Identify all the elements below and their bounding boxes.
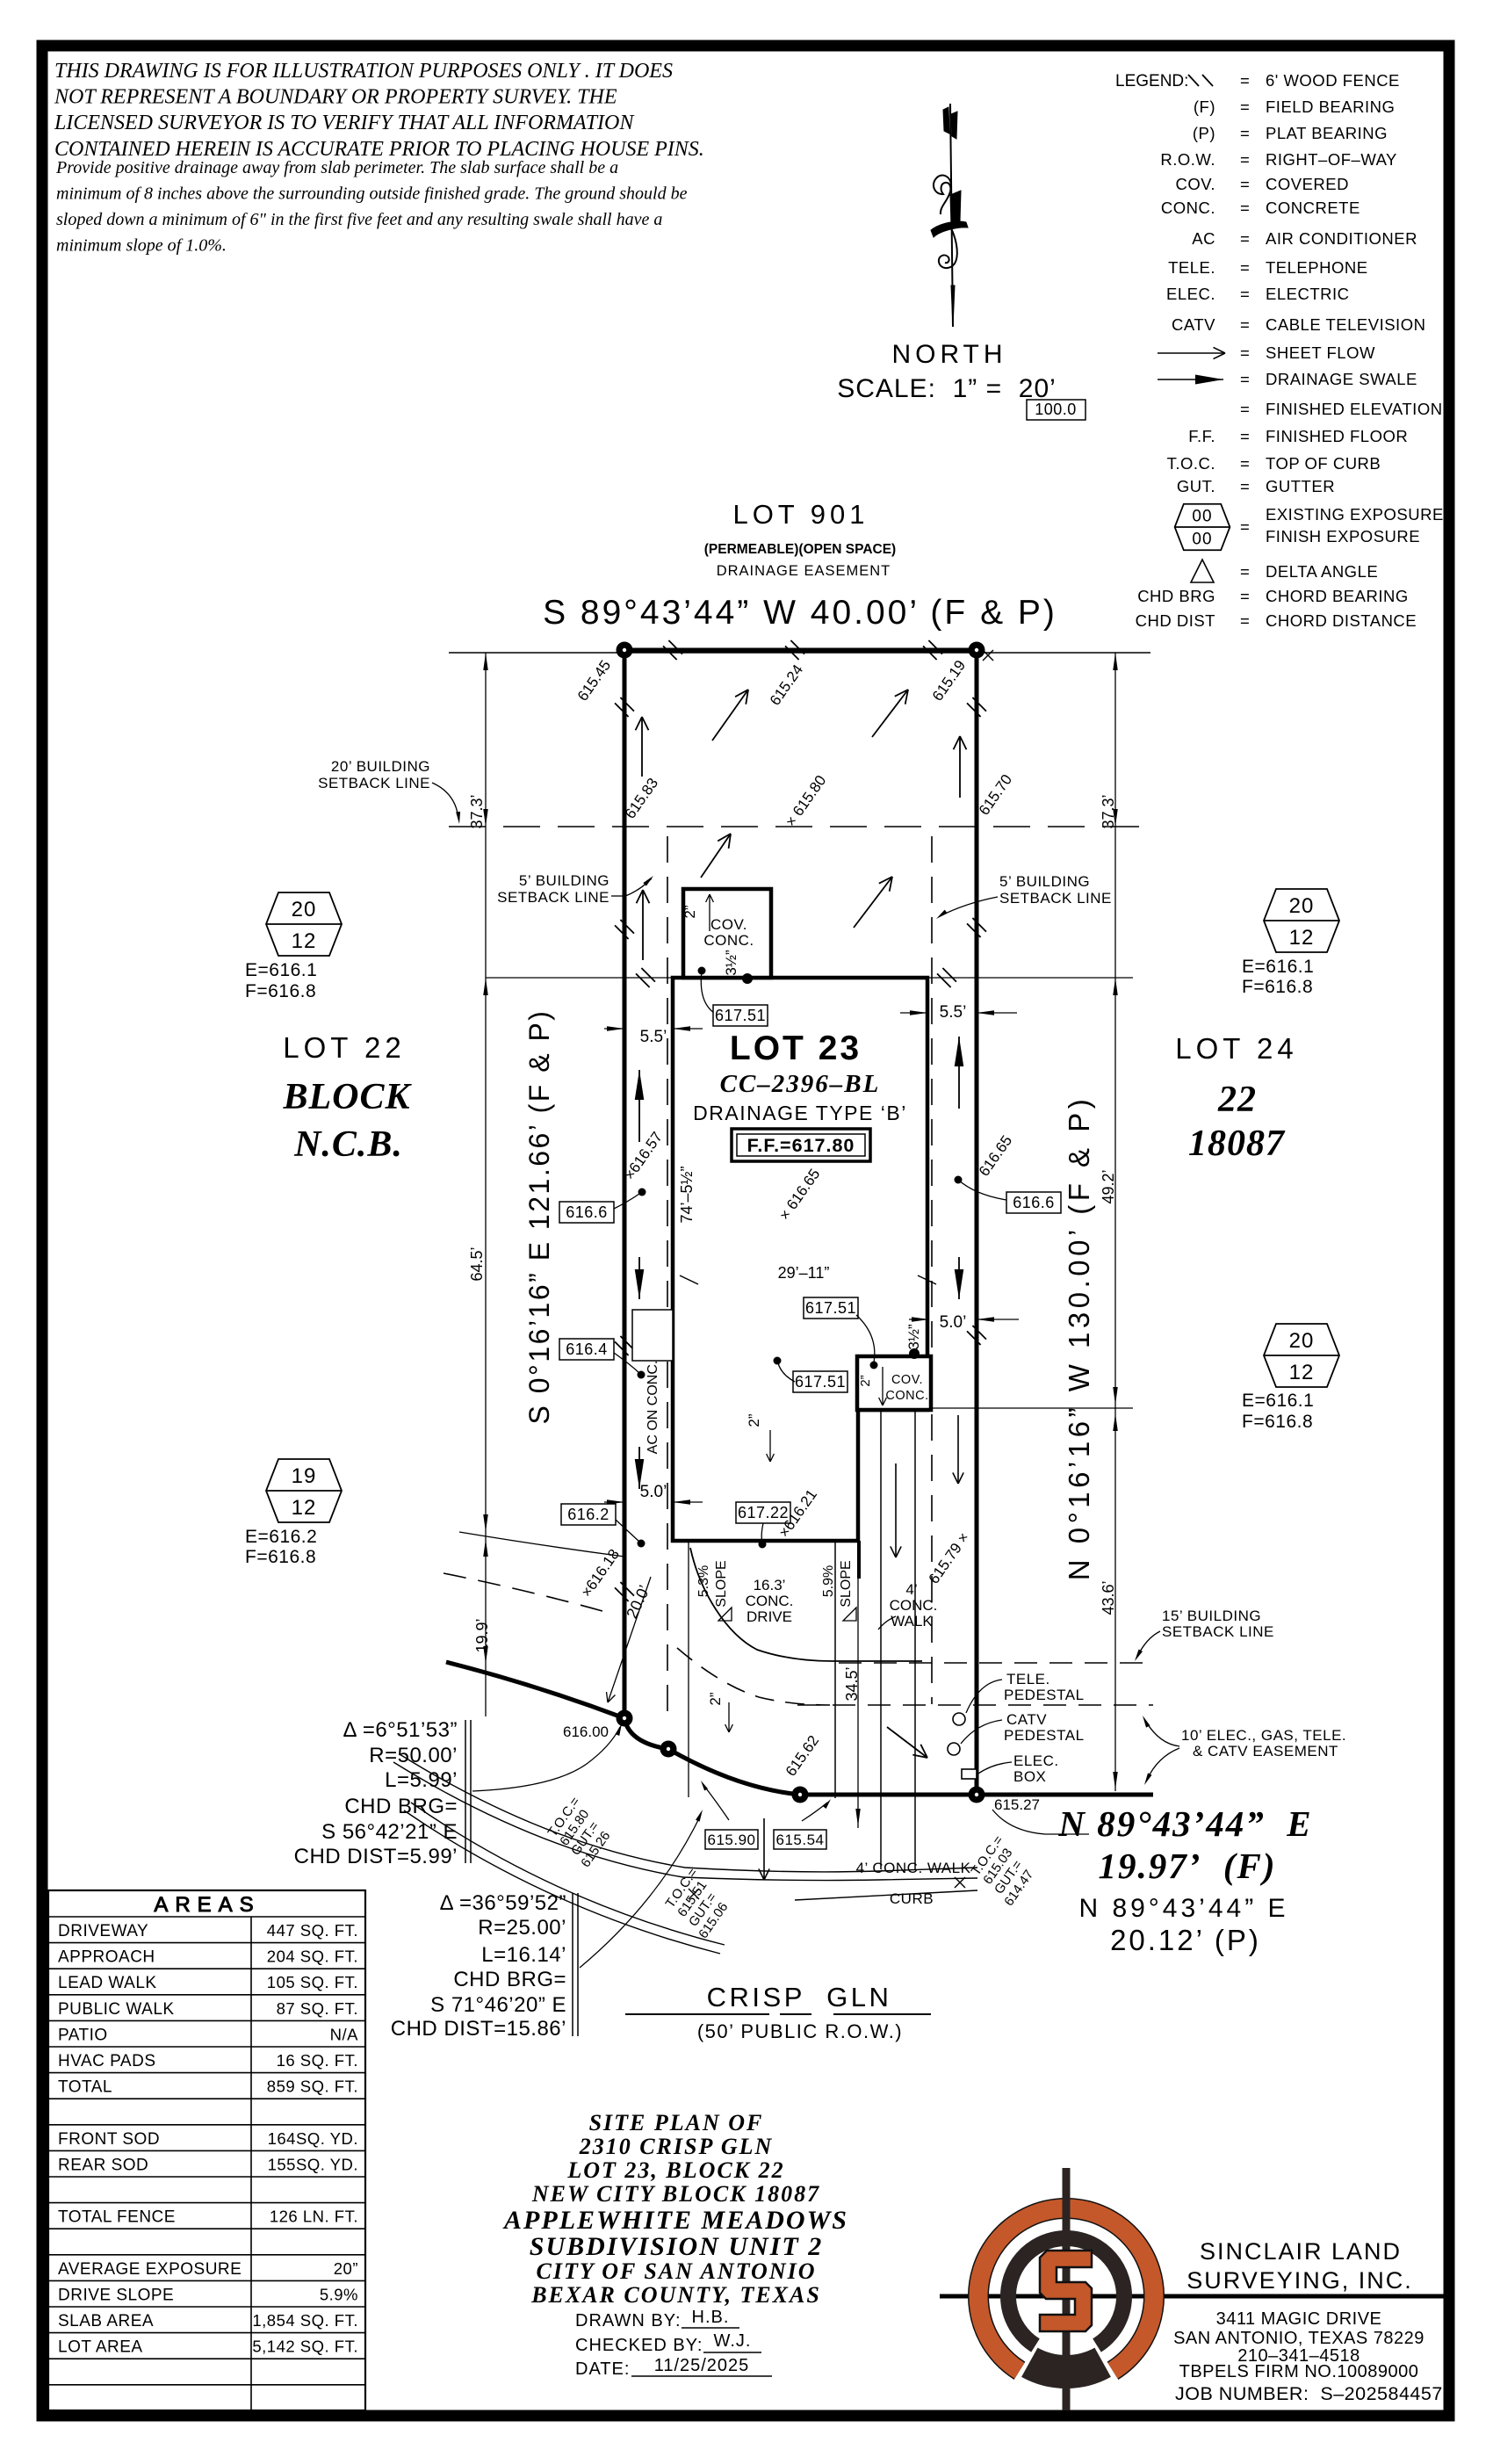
svg-text:(P): (P) — [1193, 124, 1215, 142]
svg-text:TELEPHONE: TELEPHONE — [1266, 258, 1368, 277]
svg-text:37.3’: 37.3’ — [468, 794, 486, 828]
svg-text:HVAC PADS: HVAC PADS — [58, 2052, 156, 2070]
svg-text:12: 12 — [292, 1496, 317, 1520]
svg-text:EXISTING EXPOSURE: EXISTING EXPOSURE — [1266, 505, 1444, 524]
svg-text:COV.: COV. — [891, 1373, 923, 1387]
svg-text:COVERED: COVERED — [1266, 175, 1349, 193]
svg-text:=: = — [1240, 315, 1250, 334]
svg-text:AC ON CONC.: AC ON CONC. — [646, 1361, 660, 1455]
svg-text:F=616.8: F=616.8 — [1242, 977, 1313, 997]
svg-text:AREAS: AREAS — [154, 1893, 260, 1917]
svg-text:COV.: COV. — [710, 916, 747, 933]
svg-text:minimum of 8 inches above the: minimum of 8 inches above the surroundin… — [56, 184, 688, 204]
svg-text:DRIVE: DRIVE — [746, 1608, 792, 1625]
svg-text:sloped down a minimum of 6" in: sloped down a minimum of 6" in the first… — [56, 210, 662, 229]
svg-text:& CATV EASEMENT: & CATV EASEMENT — [1193, 1743, 1338, 1759]
svg-text:APPLEWHITE MEADOWS: APPLEWHITE MEADOWS — [502, 2206, 848, 2235]
svg-text:LICENSED SURVEYOR IS TO VERIFY: LICENSED SURVEYOR IS TO VERIFY THAT ALL … — [54, 112, 635, 134]
svg-text:100.0: 100.0 — [1035, 401, 1077, 418]
svg-text:2”: 2” — [707, 1692, 724, 1705]
svg-text:SLOPE: SLOPE — [714, 1560, 729, 1607]
svg-text:616.00: 616.00 — [563, 1723, 609, 1740]
svg-text:2”: 2” — [858, 1375, 873, 1386]
svg-text:616.2: 616.2 — [567, 1506, 609, 1523]
svg-text:COV.: COV. — [1175, 175, 1215, 193]
svg-text:=: = — [1240, 454, 1250, 473]
svg-text:=: = — [1240, 611, 1250, 630]
svg-text:CHD BRG: CHD BRG — [1137, 587, 1215, 605]
svg-text:CATV: CATV — [1006, 1711, 1047, 1728]
svg-text:PATIO: PATIO — [58, 2026, 108, 2044]
svg-text:49.2’: 49.2’ — [1100, 1169, 1117, 1203]
svg-text:SLAB AREA: SLAB AREA — [58, 2312, 154, 2330]
svg-text:00: 00 — [1192, 531, 1212, 549]
svg-text:DRAINAGE EASEMENT: DRAINAGE EASEMENT — [717, 563, 891, 579]
svg-text:E=616.1: E=616.1 — [1242, 957, 1314, 977]
svg-text:=: = — [1240, 370, 1250, 388]
svg-text:TELE.: TELE. — [1006, 1671, 1050, 1687]
svg-text:617.51: 617.51 — [805, 1299, 856, 1317]
svg-text:TELE.: TELE. — [1168, 258, 1215, 277]
svg-text:CONC.: CONC. — [703, 932, 754, 949]
svg-text:=: = — [1240, 71, 1250, 90]
svg-text:5,142 SQ. FT.: 5,142 SQ. FT. — [252, 2338, 358, 2356]
svg-text:LOT 901: LOT 901 — [732, 499, 869, 530]
svg-text:11/25/2025: 11/25/2025 — [654, 2356, 750, 2375]
svg-text:12: 12 — [1289, 926, 1315, 950]
svg-text:BEXAR COUNTY, TEXAS: BEXAR COUNTY, TEXAS — [530, 2282, 821, 2308]
svg-text:SAN ANTONIO, TEXAS 78229: SAN ANTONIO, TEXAS 78229 — [1173, 2329, 1424, 2348]
svg-text:CHD DIST=15.86’: CHD DIST=15.86’ — [391, 2017, 566, 2041]
svg-text:5.0’: 5.0’ — [940, 1313, 967, 1332]
svg-text:NOT REPRESENT A BOUNDARY OR PR: NOT REPRESENT A BOUNDARY OR PROPERTY SUR… — [54, 86, 617, 109]
svg-text:=: = — [1240, 175, 1250, 193]
svg-text:FINISHED FLOOR: FINISHED FLOOR — [1266, 427, 1408, 445]
svg-text:616.6: 616.6 — [566, 1203, 608, 1221]
svg-text:(50’ PUBLIC R.O.W.): (50’ PUBLIC R.O.W.) — [697, 2020, 903, 2042]
svg-text:Δ =6°51’53”: Δ =6°51’53” — [343, 1718, 458, 1742]
svg-text:LOT 23, BLOCK 22: LOT 23, BLOCK 22 — [566, 2157, 784, 2183]
svg-text:20: 20 — [1289, 1329, 1315, 1353]
svg-text:ELECTRIC: ELECTRIC — [1266, 285, 1350, 303]
svg-text:JOB NUMBER: S–202584457: JOB NUMBER: S–202584457 — [1175, 2383, 1443, 2404]
svg-text:ELEC.: ELEC. — [1166, 285, 1215, 303]
svg-text:N 89°43’44” E: N 89°43’44” E — [1078, 1894, 1288, 1923]
svg-text:19.9’: 19.9’ — [473, 1618, 491, 1652]
svg-text:64.5’: 64.5’ — [468, 1246, 486, 1281]
svg-text:616.6: 616.6 — [1013, 1194, 1055, 1211]
svg-text:R.O.W.: R.O.W. — [1160, 150, 1215, 169]
svg-text:W.J.: W.J. — [714, 2331, 752, 2351]
svg-text:N 0°16’16” W 130.00’ (F & P): N 0°16’16” W 130.00’ (F & P) — [1063, 1095, 1095, 1580]
svg-text:20’ BUILDING: 20’ BUILDING — [331, 758, 430, 775]
svg-text:5.9%: 5.9% — [821, 1565, 836, 1597]
svg-text:5.5’: 5.5’ — [640, 1028, 667, 1046]
svg-text:CABLE TELEVISION: CABLE TELEVISION — [1266, 315, 1425, 334]
svg-text:(PERMEABLE)(OPEN SPACE): (PERMEABLE)(OPEN SPACE) — [704, 542, 896, 557]
svg-text:CHD DIST: CHD DIST — [1136, 611, 1215, 630]
svg-text:617.51: 617.51 — [715, 1007, 766, 1024]
svg-text:TOTAL: TOTAL — [58, 2078, 112, 2097]
svg-text:ELEC.: ELEC. — [1013, 1752, 1059, 1769]
svg-text:N 89°43’44” E: N 89°43’44” E — [1057, 1803, 1312, 1844]
svg-text:APPROACH: APPROACH — [58, 1948, 155, 1967]
svg-text:SETBACK LINE: SETBACK LINE — [999, 890, 1112, 907]
svg-text:155SQ. YD.: 155SQ. YD. — [268, 2155, 358, 2173]
svg-text:E=616.1: E=616.1 — [245, 960, 317, 980]
svg-text:FIELD BEARING: FIELD BEARING — [1266, 98, 1395, 116]
svg-text:CHECKED BY:: CHECKED BY: — [575, 2336, 703, 2355]
svg-text:447 SQ. FT.: 447 SQ. FT. — [267, 1921, 358, 1940]
svg-text:DELTA ANGLE: DELTA ANGLE — [1266, 562, 1378, 581]
svg-text:LOT 23: LOT 23 — [730, 1030, 862, 1067]
svg-text:00: 00 — [1192, 507, 1212, 525]
svg-text:SETBACK LINE: SETBACK LINE — [1162, 1623, 1274, 1640]
svg-text:N/A: N/A — [330, 2025, 359, 2043]
svg-text:N.C.B.: N.C.B. — [293, 1124, 403, 1165]
svg-text:FINISH EXPOSURE: FINISH EXPOSURE — [1266, 527, 1420, 546]
svg-text:859 SQ. FT.: 859 SQ. FT. — [267, 2077, 358, 2096]
svg-text:20: 20 — [1289, 894, 1315, 918]
svg-text:617.51: 617.51 — [795, 1373, 846, 1391]
svg-text:PLAT BEARING: PLAT BEARING — [1266, 124, 1388, 142]
svg-text:TBPELS FIRM NO.10089000: TBPELS FIRM NO.10089000 — [1179, 2362, 1419, 2381]
svg-text:NORTH: NORTH — [891, 340, 1006, 369]
svg-text:CONC.: CONC. — [1161, 199, 1215, 217]
svg-text:=: = — [1240, 199, 1250, 217]
svg-text:CONC.: CONC. — [890, 1597, 938, 1614]
svg-text:CHORD DISTANCE: CHORD DISTANCE — [1266, 611, 1417, 630]
svg-text:(F): (F) — [1194, 98, 1215, 116]
svg-text:R=25.00’: R=25.00’ — [478, 1916, 566, 1940]
svg-text:=: = — [1240, 427, 1250, 445]
svg-text:3½”: 3½” — [905, 1324, 922, 1350]
svg-text:minimum slope of 1.0%.: minimum slope of 1.0%. — [56, 236, 227, 256]
svg-text:SITE PLAN OF: SITE PLAN OF — [589, 2110, 764, 2135]
svg-text:CHD BRG=: CHD BRG= — [453, 1968, 566, 1991]
svg-text:Δ =36°59’52”: Δ =36°59’52” — [440, 1891, 566, 1915]
svg-text:E=616.2: E=616.2 — [245, 1527, 317, 1547]
svg-text:CONC.: CONC. — [746, 1593, 794, 1609]
svg-text:CURB: CURB — [890, 1890, 934, 1907]
svg-text:CRISP GLN: CRISP GLN — [707, 1982, 892, 2012]
svg-text:29’–11”: 29’–11” — [778, 1264, 830, 1282]
svg-text:AIR CONDITIONER: AIR CONDITIONER — [1266, 229, 1417, 248]
svg-text:616.4: 616.4 — [566, 1340, 608, 1358]
svg-text:=: = — [1240, 562, 1250, 581]
svg-text:19: 19 — [292, 1464, 317, 1488]
svg-text:TOP OF CURB: TOP OF CURB — [1266, 454, 1381, 473]
svg-text:SHEET FLOW: SHEET FLOW — [1266, 343, 1375, 362]
svg-text:CITY OF SAN ANTONIO: CITY OF SAN ANTONIO — [537, 2258, 817, 2284]
svg-text:=: = — [1240, 477, 1250, 495]
svg-text:F=616.8: F=616.8 — [245, 981, 316, 1001]
svg-text:2310 CRISP GLN: 2310 CRISP GLN — [579, 2134, 774, 2159]
svg-text:TOTAL FENCE: TOTAL FENCE — [58, 2208, 176, 2227]
svg-text:=: = — [1240, 124, 1250, 142]
svg-text:74’–5½”: 74’–5½” — [678, 1166, 696, 1223]
svg-text:615.90: 615.90 — [708, 1832, 756, 1848]
svg-text:Provide positive drainage away: Provide positive drainage away from slab… — [55, 158, 618, 177]
svg-text:GUTTER: GUTTER — [1266, 477, 1335, 495]
svg-text:3411 MAGIC DRIVE: 3411 MAGIC DRIVE — [1216, 2309, 1382, 2329]
svg-text:F=616.8: F=616.8 — [245, 1547, 316, 1567]
svg-text:GUT.: GUT. — [1177, 477, 1215, 495]
svg-text:615.27: 615.27 — [994, 1796, 1040, 1813]
svg-text:12: 12 — [1289, 1361, 1315, 1384]
svg-text:R=50.00’: R=50.00’ — [369, 1744, 458, 1767]
svg-text:CATV: CATV — [1172, 315, 1215, 334]
svg-text:T.O.C.: T.O.C. — [1167, 454, 1215, 473]
svg-text:PUBLIC WALK: PUBLIC WALK — [58, 2000, 175, 2019]
svg-text:5.3%: 5.3% — [696, 1565, 711, 1597]
svg-text:SURVEYING, INC.: SURVEYING, INC. — [1186, 2267, 1413, 2294]
svg-text:5.0’: 5.0’ — [640, 1483, 667, 1501]
svg-text:5’ BUILDING: 5’ BUILDING — [519, 872, 609, 889]
svg-text:20”: 20” — [334, 2259, 358, 2278]
svg-text:=: = — [1240, 150, 1250, 169]
svg-text:2”: 2” — [682, 905, 698, 918]
svg-text:NEW CITY BLOCK 18087: NEW CITY BLOCK 18087 — [531, 2181, 820, 2207]
svg-text:DATE:: DATE: — [575, 2359, 630, 2379]
svg-text:L=16.14’: L=16.14’ — [481, 1943, 566, 1967]
svg-text:S 0°16’16” E 121.66’ (F & P): S 0°16’16” E 121.66’ (F & P) — [523, 1009, 555, 1425]
svg-text:15’ BUILDING: 15’ BUILDING — [1162, 1608, 1261, 1624]
svg-text:H.B.: H.B. — [692, 2308, 730, 2327]
svg-text:FINISHED ELEVATION: FINISHED ELEVATION — [1266, 400, 1443, 418]
svg-text:S 56°42’21” E: S 56°42’21” E — [321, 1820, 458, 1844]
svg-text:LOT 22: LOT 22 — [283, 1031, 405, 1064]
svg-text:F.F.=617.80: F.F.=617.80 — [747, 1135, 855, 1156]
svg-text:19.97’ (F): 19.97’ (F) — [1098, 1846, 1276, 1886]
svg-text:RIGHT–OF–WAY: RIGHT–OF–WAY — [1266, 150, 1397, 169]
svg-text:617.22: 617.22 — [738, 1504, 789, 1521]
svg-text:105 SQ. FT.: 105 SQ. FT. — [267, 1973, 358, 1991]
svg-text:37.3’: 37.3’ — [1100, 794, 1117, 828]
svg-text:WALK: WALK — [891, 1613, 933, 1629]
svg-text:CONTAINED HEREIN IS ACCURATE P: CONTAINED HEREIN IS ACCURATE PRIOR TO PL… — [54, 138, 704, 161]
svg-text:18087: 18087 — [1188, 1124, 1286, 1164]
svg-text:5.9%: 5.9% — [320, 2285, 358, 2303]
svg-text:F.F.: F.F. — [1188, 427, 1215, 445]
svg-text:6' WOOD FENCE: 6' WOOD FENCE — [1266, 71, 1400, 90]
svg-text:PEDESTAL: PEDESTAL — [1004, 1727, 1085, 1744]
svg-text:S 71°46’20” E: S 71°46’20” E — [430, 1993, 566, 2017]
svg-text:DRIVE SLOPE: DRIVE SLOPE — [58, 2286, 174, 2304]
svg-text:L=5.99’: L=5.99’ — [385, 1768, 458, 1792]
svg-text:22: 22 — [1217, 1080, 1257, 1120]
svg-text:126 LN. FT.: 126 LN. FT. — [270, 2207, 358, 2226]
svg-text:12: 12 — [292, 929, 317, 953]
svg-text:=: = — [1240, 400, 1250, 418]
svg-text:20: 20 — [292, 898, 317, 921]
svg-text:E=616.1: E=616.1 — [1242, 1391, 1314, 1411]
svg-text:4’: 4’ — [905, 1581, 917, 1598]
svg-text:=: = — [1240, 587, 1250, 605]
svg-text:=: = — [1240, 343, 1250, 362]
svg-text:DRAINAGE TYPE ‘B’: DRAINAGE TYPE ‘B’ — [693, 1102, 907, 1124]
svg-text:16 SQ. FT.: 16 SQ. FT. — [277, 2051, 358, 2070]
svg-text:164SQ. YD.: 164SQ. YD. — [268, 2129, 358, 2148]
svg-text:3½”: 3½” — [723, 950, 739, 976]
svg-text:SETBACK LINE: SETBACK LINE — [318, 775, 430, 791]
svg-text:LEAD WALK: LEAD WALK — [58, 1974, 157, 1992]
svg-text:FRONT SOD: FRONT SOD — [58, 2130, 160, 2149]
svg-text:20.12’ (P): 20.12’ (P) — [1110, 1924, 1261, 1956]
svg-text:1,854 SQ. FT.: 1,854 SQ. FT. — [252, 2311, 358, 2330]
svg-text:BLOCK: BLOCK — [282, 1077, 412, 1117]
svg-text:CHD DIST=5.99’: CHD DIST=5.99’ — [294, 1845, 458, 1868]
svg-text:CHORD BEARING: CHORD BEARING — [1266, 587, 1409, 605]
svg-text:CC–2396–BL: CC–2396–BL — [720, 1070, 881, 1098]
svg-text:87 SQ. FT.: 87 SQ. FT. — [277, 1999, 358, 2018]
svg-text:=: = — [1240, 285, 1250, 303]
svg-text:CONC.: CONC. — [885, 1389, 928, 1403]
svg-text:=: = — [1240, 98, 1250, 116]
svg-text:=: = — [1240, 517, 1250, 536]
svg-text:THIS DRAWING IS FOR ILLUSTRATI: THIS DRAWING IS FOR ILLUSTRATION PURPOSE… — [54, 60, 673, 83]
svg-text:4’ CONC. WALK: 4’ CONC. WALK — [856, 1860, 971, 1876]
svg-text:CONCRETE: CONCRETE — [1266, 199, 1360, 217]
svg-text:AC: AC — [1192, 229, 1215, 248]
svg-text:LEGEND:: LEGEND: — [1115, 72, 1188, 90]
svg-text:S 89°43’44” W 40.00’ (F & P): S 89°43’44” W 40.00’ (F & P) — [543, 594, 1057, 632]
svg-text:REAR SOD: REAR SOD — [58, 2156, 148, 2174]
svg-text:=: = — [1240, 229, 1250, 248]
svg-text:2”: 2” — [746, 1413, 762, 1427]
svg-text:DRAINAGE SWALE: DRAINAGE SWALE — [1266, 370, 1417, 388]
svg-text:DRAWN BY:: DRAWN BY: — [575, 2311, 682, 2330]
svg-text:5.5’: 5.5’ — [940, 1003, 967, 1022]
svg-text:204 SQ. FT.: 204 SQ. FT. — [267, 1947, 358, 1966]
svg-text:SUBDIVISION UNIT 2: SUBDIVISION UNIT 2 — [530, 2232, 823, 2261]
svg-text:AVERAGE EXPOSURE: AVERAGE EXPOSURE — [58, 2260, 242, 2279]
svg-text:10’ ELEC., GAS, TELE.: 10’ ELEC., GAS, TELE. — [1181, 1727, 1346, 1744]
svg-text:DRIVEWAY: DRIVEWAY — [58, 1922, 148, 1940]
svg-text:=: = — [1240, 258, 1250, 277]
svg-text:SLOPE: SLOPE — [839, 1560, 854, 1607]
svg-text:F=616.8: F=616.8 — [1242, 1412, 1313, 1432]
svg-text:PEDESTAL: PEDESTAL — [1004, 1687, 1085, 1703]
svg-text:SINCLAIR LAND: SINCLAIR LAND — [1200, 2238, 1402, 2265]
svg-text:615.54: 615.54 — [776, 1832, 825, 1848]
svg-text:16.3’: 16.3’ — [754, 1577, 786, 1593]
svg-text:SCALE: 1” = 20’: SCALE: 1” = 20’ — [837, 374, 1057, 403]
svg-text:43.6’: 43.6’ — [1100, 1580, 1117, 1615]
svg-text:LOT 24: LOT 24 — [1175, 1032, 1297, 1065]
svg-text:BOX: BOX — [1013, 1768, 1046, 1785]
svg-text:34.5’: 34.5’ — [843, 1666, 861, 1701]
svg-text:CHD BRG=: CHD BRG= — [344, 1795, 458, 1818]
svg-text:5’ BUILDING: 5’ BUILDING — [999, 873, 1090, 890]
svg-text:SETBACK LINE: SETBACK LINE — [497, 889, 609, 906]
svg-text:LOT AREA: LOT AREA — [58, 2338, 143, 2357]
